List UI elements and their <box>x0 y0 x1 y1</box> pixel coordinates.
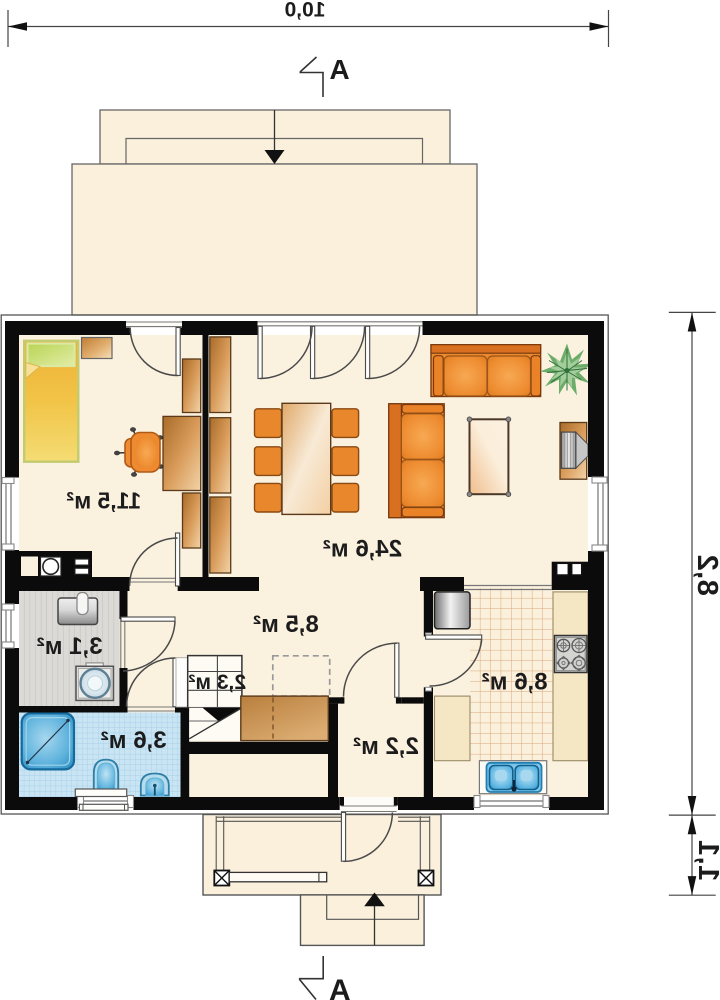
svg-text:3,6 м²: 3,6 м² <box>101 727 167 754</box>
svg-text:8,6 м²: 8,6 м² <box>482 669 548 696</box>
svg-text:8,2: 8,2 <box>691 554 720 596</box>
svg-text:A: A <box>329 54 349 85</box>
svg-text:8,5 м²: 8,5 м² <box>253 611 319 638</box>
svg-text:A: A <box>329 974 351 1000</box>
svg-text:10,0: 10,0 <box>285 0 326 22</box>
svg-text:2,3 м²: 2,3 м² <box>189 671 247 694</box>
svg-text:11,5 м²: 11,5 м² <box>66 488 141 514</box>
svg-text:1,1: 1,1 <box>692 840 720 882</box>
svg-text:3,1 м²: 3,1 м² <box>37 633 103 660</box>
svg-text:24,6 м²: 24,6 м² <box>323 536 402 563</box>
svg-text:2,2 м²: 2,2 м² <box>353 733 419 760</box>
